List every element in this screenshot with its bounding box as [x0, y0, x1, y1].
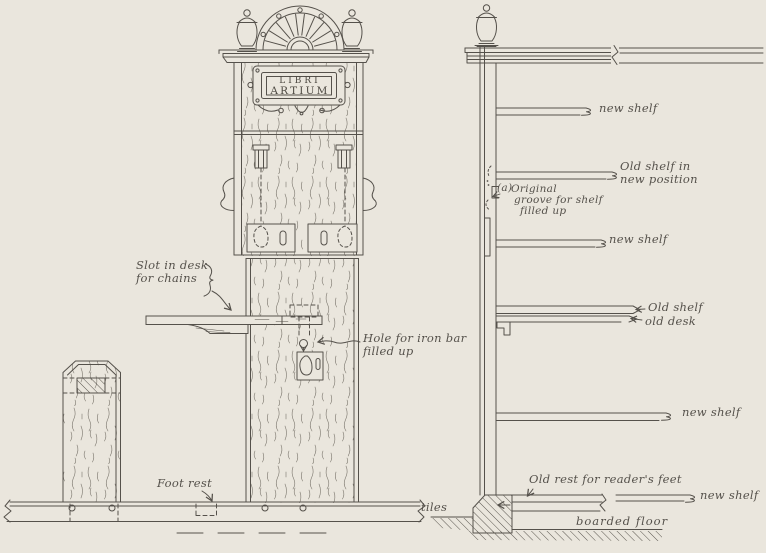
pillar — [234, 63, 363, 504]
shelf-new-3 — [496, 413, 671, 421]
slot-in-desk-label: Slot in desk for chains — [136, 259, 208, 285]
shelf-old — [496, 306, 640, 314]
original-groove-label: Original groove for shelf filled up — [511, 184, 603, 217]
old-desk-label: old desk — [645, 315, 696, 328]
side-hook-icon — [221, 178, 234, 211]
shelf-old-new-position — [496, 172, 617, 179]
chain-plate-left — [247, 224, 295, 252]
urn-finial-icon — [237, 10, 257, 52]
shelf-new-4 — [616, 495, 695, 502]
tiles-ground — [431, 517, 473, 531]
foot-rest-label: Foot rest — [157, 477, 212, 490]
old-shelf-leader-arrow — [636, 309, 645, 310]
reader-post — [63, 361, 121, 502]
libri-artium-plate: LIBRI ARTIUM — [254, 76, 346, 97]
base-board — [4, 500, 425, 522]
old-foot-rest-board — [498, 494, 606, 511]
foot-rest-leader-arrow — [202, 491, 212, 501]
shelf-new-1 — [496, 108, 591, 115]
new-shelf-label-1: new shelf — [599, 102, 657, 115]
side-post — [480, 46, 496, 496]
book-illustration: LIBRI ARTIUM Slot in desk for chains Hol… — [0, 0, 766, 553]
boarded-floor-label: boarded floor — [576, 515, 668, 528]
plinth — [473, 495, 512, 533]
hole-for-iron-bar-label: Hole for iron bar filled up — [363, 332, 466, 358]
old-rest-label: Old rest for reader's feet — [529, 473, 682, 486]
old-shelf-new-position-label: Old shelf in new position — [620, 160, 698, 186]
chain-plate-right — [308, 224, 357, 252]
tiles-label: tiles — [421, 501, 447, 514]
urn-finial-icon — [342, 10, 362, 52]
fan-crest-icon — [256, 6, 344, 50]
side-cornice — [465, 46, 763, 66]
new-shelf-label-3: new shelf — [682, 406, 740, 419]
side-hook-icon — [363, 178, 376, 211]
front-elevation — [4, 6, 425, 533]
old-shelf-label: Old shelf — [648, 301, 703, 314]
old-desk-board — [496, 316, 637, 335]
shelf-new-2 — [496, 240, 606, 247]
new-shelf-label-2: new shelf — [609, 233, 667, 246]
slot-leader-arrow — [212, 291, 231, 310]
boarded-floor-board — [468, 530, 662, 542]
plate-line-2: ARTIUM — [254, 86, 346, 97]
side-section — [431, 5, 763, 541]
urn-finial-icon — [476, 5, 496, 47]
technical-drawing — [0, 0, 766, 553]
new-shelf-label-4: new shelf — [700, 489, 758, 502]
